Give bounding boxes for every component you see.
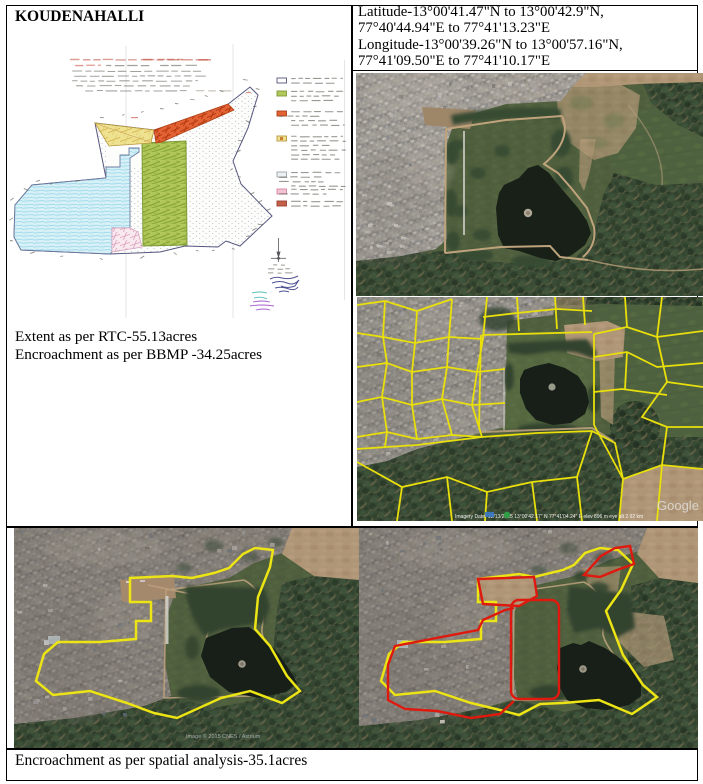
- svg-text:Image © 2015 CNES / Astrium: Image © 2015 CNES / Astrium: [524, 741, 592, 748]
- svg-text:Image © 2015 CNES / Astrium: Image © 2015 CNES / Astrium: [186, 733, 261, 740]
- svg-text:Google ea: Google ea: [657, 498, 703, 513]
- svg-text:Imagery Date: 12/13/2015 13: Imagery Date: 12/13/2015 13°00'42.17" N …: [455, 514, 643, 520]
